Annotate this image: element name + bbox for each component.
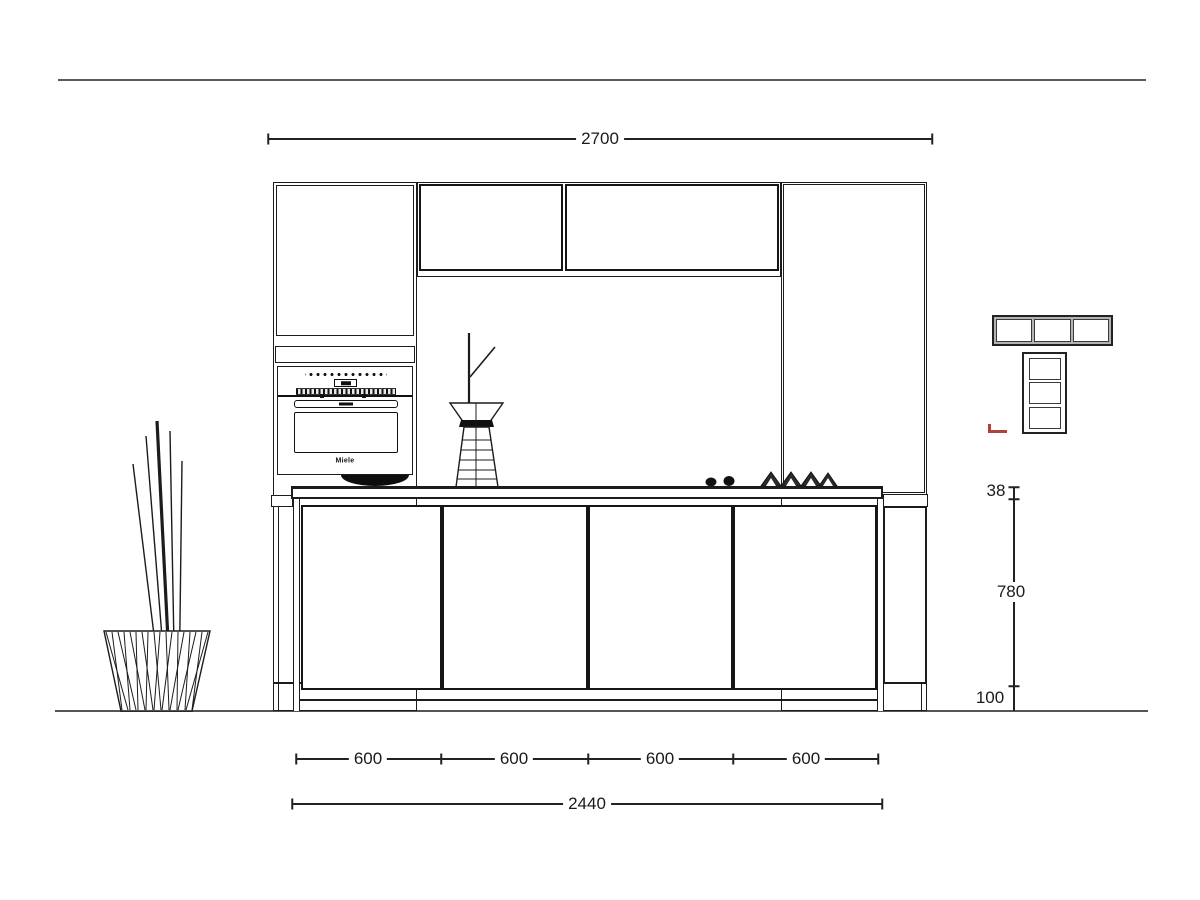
oven-door-window: [294, 412, 398, 453]
red-annotation-mark: [988, 430, 1007, 433]
tall-cabinet-left-drawer-front: [275, 346, 415, 363]
dim-38-label: 38: [985, 481, 1008, 501]
bench-door-2: [442, 505, 588, 690]
vase-top-bowl: [450, 403, 503, 423]
bench-door-4: [733, 505, 877, 690]
bench-bottom-rail: [300, 699, 878, 701]
dim-tick: [291, 799, 293, 810]
schematic-tall-cabinet-column: [1022, 352, 1067, 434]
oven-control-strip: [296, 388, 396, 395]
dim-100-label: 100: [974, 688, 1006, 708]
dim-600-label-4: 600: [787, 749, 825, 769]
bench-door-3: [588, 505, 733, 690]
tall-cabinet-left-upper-door: [276, 185, 414, 336]
dim-tick: [931, 134, 933, 145]
ground-line: [55, 710, 1148, 712]
plant-pot-hatch: [106, 632, 208, 710]
dim-600-label-3: 600: [641, 749, 679, 769]
dim-tick: [295, 754, 297, 765]
oven-handle: [294, 400, 398, 408]
top-page-rule: [58, 79, 1146, 81]
oven-display-segment: [341, 381, 351, 385]
dim-tick: [267, 134, 269, 145]
plant-reeds: [133, 421, 182, 700]
schematic-strip-cell: [1073, 319, 1109, 342]
oven-display: [334, 379, 357, 387]
schematic-column-cell: [1029, 407, 1061, 429]
oven-hinge-left: [320, 394, 324, 398]
dim-780-label: 780: [992, 582, 1030, 602]
decor-pebble-1: [706, 478, 717, 487]
dim-2440-label: 2440: [563, 794, 611, 814]
dim-tick: [440, 754, 442, 765]
tall-cabinet-right-door: [783, 184, 925, 493]
vase-dark-band: [459, 420, 494, 427]
dim-tick: [1009, 685, 1020, 687]
floor-plant: [104, 421, 210, 711]
dim-600-label-1: 600: [349, 749, 387, 769]
plinth-line-right-inner: [921, 683, 922, 711]
decorative-vase: [450, 333, 503, 487]
dim-tick: [587, 754, 589, 765]
vase-branch: [470, 347, 495, 377]
upper-cabinet-door-1: [419, 184, 563, 271]
upper-cabinet-door-2: [565, 184, 779, 271]
dim-tick: [1009, 486, 1020, 488]
plant-pot: [104, 631, 210, 711]
bench-leg-right: [877, 499, 884, 711]
vase-hatch: [457, 403, 497, 487]
kitchen-elevation-drawing: Miele: [0, 0, 1200, 900]
oven-handle-logo: [339, 403, 353, 406]
schematic-column-cell: [1029, 358, 1061, 380]
vase-lower-cone: [456, 427, 498, 487]
wall-counter-right-sliver: [883, 494, 928, 507]
oven-control-dots: [305, 372, 387, 377]
bench-door-1: [301, 505, 442, 690]
oven-brand-label: Miele: [335, 458, 354, 465]
dim-tick: [877, 754, 879, 765]
decor-pebble-2: [724, 476, 735, 486]
wall-counter-left-sliver: [271, 495, 293, 507]
schematic-wall-cabinet-strip: [992, 315, 1113, 346]
red-annotation-mark-tick: [988, 424, 991, 431]
schematic-column-cell: [1029, 382, 1061, 404]
plinth-line-left-inner: [278, 499, 279, 711]
dim-tick: [732, 754, 734, 765]
schematic-strip-cell: [996, 319, 1032, 342]
oven-panel-divider: [278, 395, 412, 397]
bench-leg-left: [293, 499, 300, 711]
bench-countertop: [291, 487, 883, 499]
dim-tick: [1009, 498, 1020, 500]
oven-hinge-right: [362, 394, 366, 398]
schematic-strip-cell: [1034, 319, 1070, 342]
dim-tick: [881, 799, 883, 810]
dim-top-label: 2700: [576, 129, 624, 149]
dim-600-label-2: 600: [495, 749, 533, 769]
tall-right-lower-panel: [884, 507, 926, 683]
